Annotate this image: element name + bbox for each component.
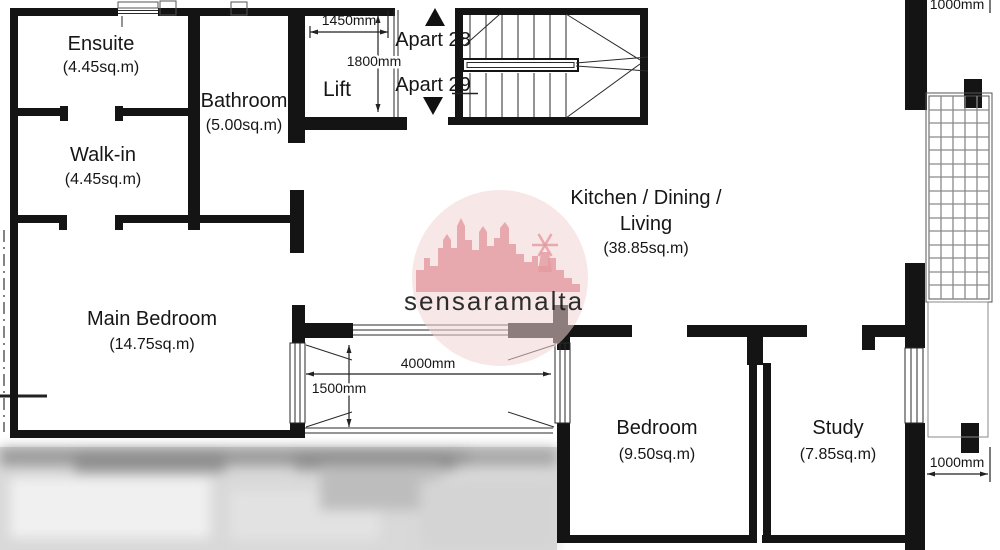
bathroom-name: Bathroom (201, 90, 288, 112)
dim-right-walkway-label: 1000mm (930, 454, 984, 470)
apart-28-label: Apart 28 (395, 29, 471, 51)
bathroom-area: (5.00sq.m) (206, 117, 282, 134)
room-label-lift: Lift (323, 78, 351, 101)
walk-in-area: (4.45sq.m) (65, 171, 141, 188)
ensuite-name: Ensuite (68, 33, 135, 55)
main-bedroom-name: Main Bedroom (87, 308, 217, 330)
main-bedroom-area: (14.75sq.m) (109, 336, 194, 353)
lift-name: Lift (323, 78, 351, 101)
kitchen-name-line1: Kitchen / Dining / (570, 187, 722, 209)
blurred-terrace-area (0, 447, 557, 550)
dim-lift-width-label: 1450mm (322, 12, 376, 28)
stair-handrail (463, 59, 578, 71)
kitchen-name-line2: Living (620, 213, 672, 235)
study-area: (7.85sq.m) (800, 446, 876, 463)
dim-sliding-door-label: 4000mm (401, 355, 455, 371)
dim-lift-depth-label: 1800mm (347, 53, 401, 69)
room-label-ensuite: Ensuite (4.45sq.m) (63, 33, 139, 76)
watermark-text: sensaramalta (404, 286, 584, 316)
apart-29-label: Apart 29 (395, 74, 471, 96)
dim-top-right-label: 1000mm (930, 0, 984, 12)
kitchen-area: (38.85sq.m) (603, 240, 688, 257)
walk-in-name: Walk-in (70, 144, 136, 166)
floor-plan: 1450mm 1800mm 4000mm 1500mm 1000mm 1000m… (0, 0, 1000, 550)
dim-terrace-depth-label: 1500mm (312, 380, 366, 396)
study-name: Study (812, 417, 863, 439)
bedroom-name: Bedroom (616, 417, 697, 439)
bedroom-area: (9.50sq.m) (619, 446, 695, 463)
dimension-top-right: 1000mm (930, 0, 990, 13)
ensuite-area: (4.45sq.m) (63, 59, 139, 76)
